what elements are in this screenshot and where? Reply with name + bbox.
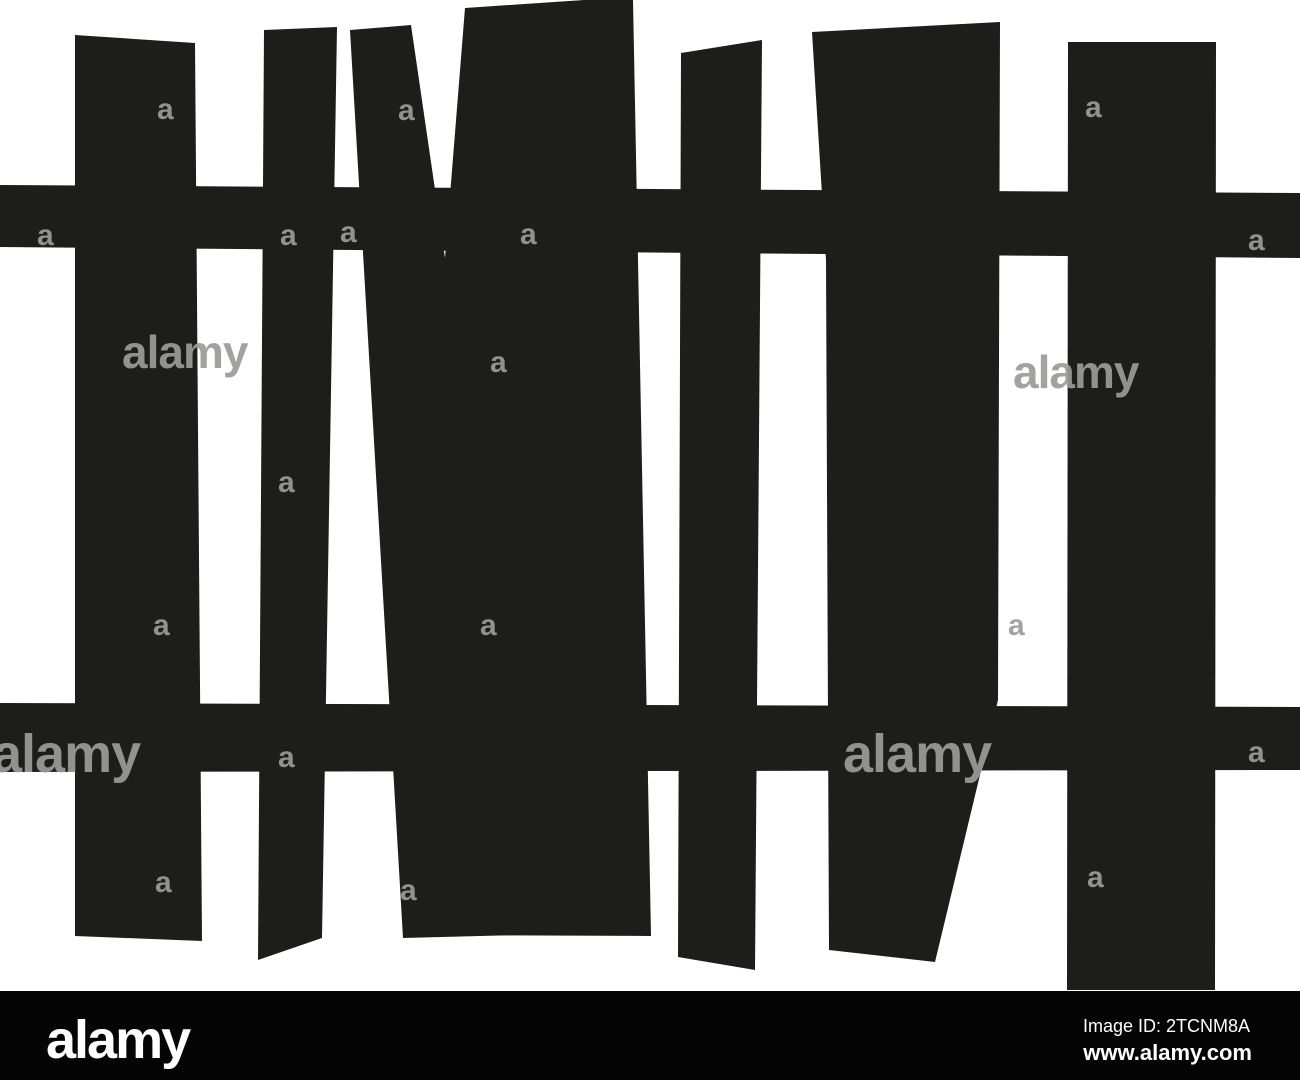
watermark-a-mark: a: [155, 866, 172, 899]
watermark-a-mark: a: [1085, 91, 1102, 124]
watermark-alamy-word: alamy: [843, 724, 992, 784]
watermark-a-mark: a: [280, 219, 297, 252]
watermark-a-mark: a: [1008, 609, 1025, 642]
alamy-url-text: www.alamy.com: [1082, 1040, 1252, 1065]
watermark-a-mark: a: [480, 609, 497, 642]
watermark-a-mark: a: [400, 874, 417, 907]
picket-7: [1067, 42, 1216, 990]
watermark-a-mark: a: [1248, 736, 1265, 769]
watermark-a-mark: a: [37, 219, 54, 252]
image-id-text: Image ID: 2TCNM8A: [1083, 1016, 1250, 1036]
lower-rail: [0, 703, 1300, 772]
watermark-a-mark: a: [153, 609, 170, 642]
watermark-a-mark: a: [278, 741, 295, 774]
watermark-alamy-word: alamy: [0, 724, 141, 784]
watermark-a-mark: a: [1248, 224, 1265, 257]
watermark-a-mark: a: [490, 346, 507, 379]
fence-silhouette-illustration: aaaaaaaaaaaaaaaaaaalamyalamyalamyalamy a…: [0, 0, 1300, 1080]
watermark-a-mark: a: [340, 216, 357, 249]
watermark-alamy-word: alamy: [122, 326, 249, 378]
watermark-a-mark: a: [398, 94, 415, 127]
watermark-a-mark: a: [1087, 861, 1104, 894]
alamy-footer-bar: alamy Image ID: 2TCNM8A www.alamy.com: [0, 991, 1300, 1080]
stock-image-page: aaaaaaaaaaaaaaaaaaalamyalamyalamyalamy a…: [0, 0, 1300, 1080]
watermark-a-mark: a: [157, 93, 174, 126]
picket-1: [75, 35, 202, 941]
watermark-alamy-word: alamy: [1013, 346, 1140, 398]
watermark-a-mark: a: [520, 218, 537, 251]
watermark-a-mark: a: [278, 466, 295, 499]
alamy-logo: alamy: [46, 1010, 191, 1070]
upper-rail: [0, 185, 1300, 258]
picket-4-wide: [420, 0, 651, 936]
picket-5: [678, 40, 762, 970]
